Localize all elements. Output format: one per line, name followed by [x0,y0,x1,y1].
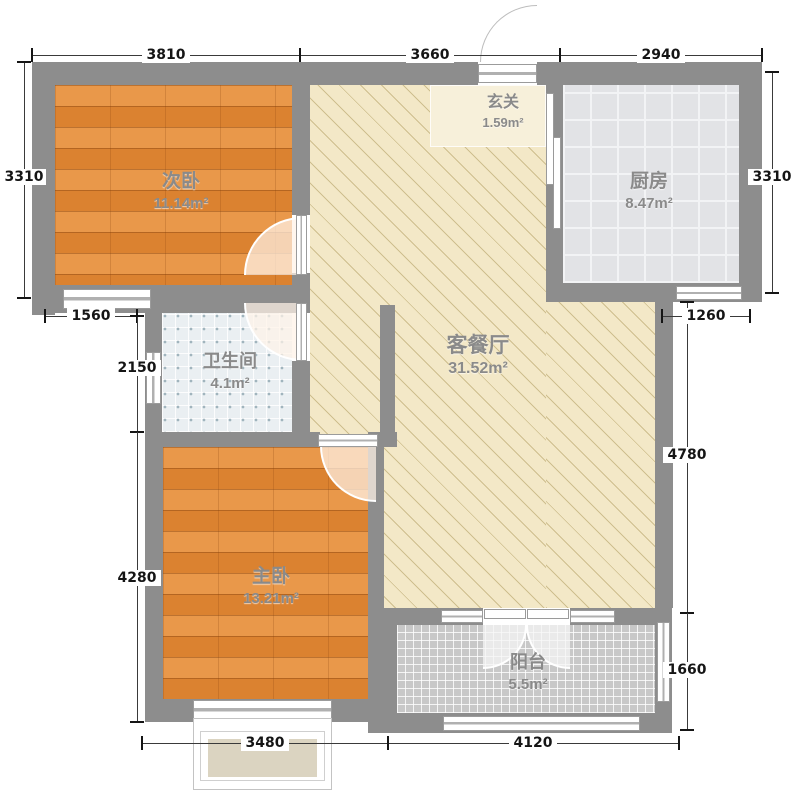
window-kitchen-bottom [676,286,742,300]
room-label-entry: 玄关 [487,95,519,111]
room-area-master: 13.21m² [243,591,299,606]
bay-window-frame [193,718,332,790]
balcony-door-leaf-right [527,609,569,619]
dim-left-1560: 1560 [67,308,115,324]
window-balcony-bottom [443,716,640,731]
dim-right-3310: 3310 [748,169,796,185]
dim-tick [680,729,694,731]
entrance-door-leaf [478,64,537,83]
dim-bottom-4120: 4120 [509,735,557,751]
dim-tick [387,736,389,750]
dim-tick [44,309,46,323]
dim-tick [130,315,144,317]
dim-line-bottom [142,743,679,744]
dim-left-4280: 4280 [113,570,161,586]
dim-top-3: 2940 [637,47,685,63]
floor-plan: 次卧 11.14m² 玄关 1.59m² 厨房 8.47m² 卫生间 4.1m²… [0,0,800,800]
window-balcony-top-left [441,610,483,623]
dim-tick [765,71,779,73]
wall-bathroom-right-lower [292,361,310,432]
kitchen-sliding-door-panel-2 [553,137,561,229]
dim-tick [299,48,301,62]
dim-tick [31,48,33,62]
dim-top-2: 3660 [406,47,454,63]
dim-left-3310: 3310 [2,169,46,185]
wall-bathroom-right-upper [292,287,310,303]
room-label-bedroom2: 次卧 [162,172,200,191]
wall-outer-left-upper [32,62,55,315]
wall-top-right [537,62,762,85]
dim-right-1660: 1660 [663,662,711,678]
dim-tick [678,736,680,750]
dim-tick [17,297,31,299]
dim-tick [680,301,694,303]
window-balcony-top-right [570,610,615,623]
dim-tick [559,48,561,62]
room-label-balcony: 阳台 [510,653,546,671]
wall-living-stub [380,305,395,447]
room-area-entry: 1.59m² [482,116,523,129]
room-area-balcony: 5.5m² [508,677,547,692]
wall-bedroom2-right-upper [292,85,310,215]
dim-tick [130,721,144,723]
wall-bathroom-bottom [145,432,320,447]
room-area-bathroom: 4.1m² [210,376,249,391]
window-bedroom2-bottom [63,289,151,309]
dim-top-1: 3810 [142,47,190,63]
dim-tick [17,61,31,63]
dim-tick [749,309,751,323]
dim-tick [661,309,663,323]
dim-tick [141,736,143,750]
bathroom-door-leaf [296,303,307,361]
living-room-floor-right [546,302,655,608]
dim-right-4780: 4780 [663,447,711,463]
dim-tick [761,48,763,62]
wall-bedroom2-right-lower [292,273,310,287]
window-master-bay [193,700,332,720]
dim-tick [765,292,779,294]
wall-top-left [32,62,478,85]
entrance-door-arc [480,5,537,62]
balcony-door-leaf-left [484,609,526,619]
room-label-master: 主卧 [252,567,290,586]
dim-bottom-3480: 3480 [241,735,289,751]
dim-right-1260: 1260 [682,308,730,324]
dim-left-2150: 2150 [113,360,161,376]
room-area-kitchen: 8.47m² [625,196,673,211]
room-label-kitchen: 厨房 [630,172,668,191]
room-area-bedroom2: 11.14m² [153,196,208,211]
room-label-bathroom: 卫生间 [203,352,257,370]
master-door-leaf [318,434,378,447]
room-label-living: 客餐厅 [447,335,510,356]
bedroom2-door-leaf [296,215,307,275]
room-area-living: 31.52m² [448,361,508,377]
